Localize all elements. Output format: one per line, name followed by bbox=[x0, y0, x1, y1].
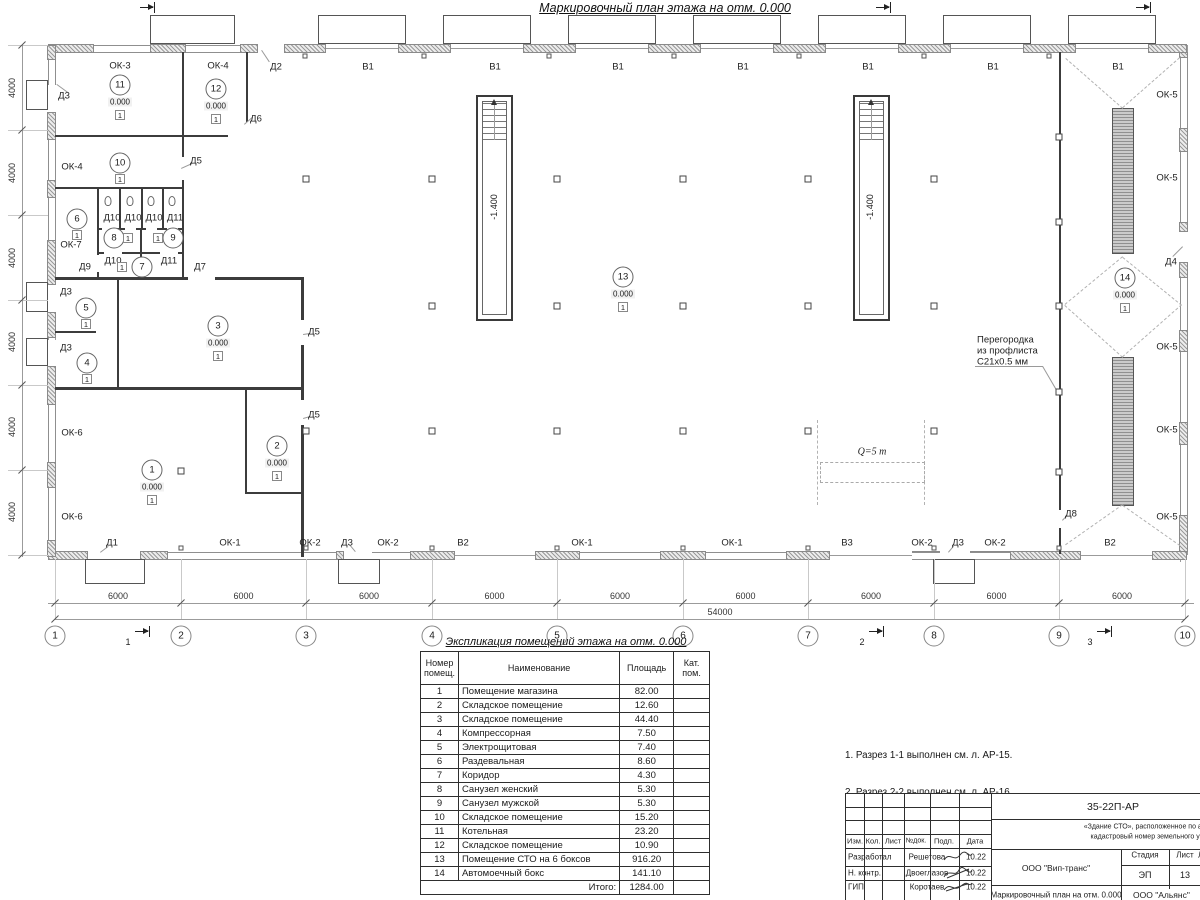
table-cell bbox=[674, 769, 710, 783]
table-cell bbox=[674, 727, 710, 741]
dimension-value: 4000 bbox=[7, 78, 17, 98]
window-segment bbox=[186, 45, 240, 53]
floor-type: 1 bbox=[72, 230, 82, 240]
column bbox=[931, 303, 938, 310]
floor-plan: ОК-3ОК-4Д2В1В1В1В1В1В1В1Д3Д6ОК-4Д5Д10Д10… bbox=[0, 0, 1200, 660]
floor-type: 1 bbox=[81, 319, 91, 329]
column bbox=[554, 303, 561, 310]
row-role: ГИП bbox=[848, 883, 864, 892]
entrance-canopy bbox=[85, 559, 145, 584]
wall-segment bbox=[523, 44, 576, 53]
floor-type: 1 bbox=[213, 351, 223, 361]
table-cell: 4.30 bbox=[620, 769, 674, 783]
entrance-canopy bbox=[818, 15, 906, 44]
wall-segment bbox=[47, 366, 56, 405]
slope-line bbox=[1064, 305, 1123, 358]
table-total-row: Итого:1284.00 bbox=[421, 881, 710, 895]
plan-label: Д10 bbox=[124, 213, 141, 224]
section-number: 3 bbox=[1087, 637, 1092, 647]
grid-extension bbox=[432, 559, 433, 619]
entrance-canopy bbox=[26, 282, 48, 312]
table-cell: 7 bbox=[421, 769, 459, 783]
col-kol: Кол. bbox=[866, 837, 881, 846]
col-ndok: №док. bbox=[906, 838, 927, 845]
table-cell: 5 bbox=[421, 741, 459, 755]
room-number: 6 bbox=[67, 209, 88, 230]
plan-label: Д11 bbox=[161, 256, 177, 267]
column bbox=[303, 428, 310, 435]
plan-label: Д3 bbox=[60, 343, 72, 354]
wall-segment bbox=[1152, 551, 1187, 560]
table-cell bbox=[674, 783, 710, 797]
stair-arrow bbox=[871, 104, 872, 140]
col-izm: Изм. bbox=[847, 837, 863, 846]
floor-type: 1 bbox=[115, 110, 125, 120]
door-opening bbox=[47, 340, 57, 366]
table-cell: 10.90 bbox=[620, 839, 674, 853]
interior-wall bbox=[246, 52, 248, 122]
table-cell: Складское помещение bbox=[458, 811, 619, 825]
room-number: 12 bbox=[206, 79, 227, 100]
table-cell: Компрессорная bbox=[458, 727, 619, 741]
window-segment bbox=[706, 552, 786, 560]
titleblock-line bbox=[846, 820, 991, 821]
row-name: Решетова bbox=[909, 853, 946, 862]
plan-label: В1 bbox=[862, 62, 874, 73]
interior-wall bbox=[97, 187, 99, 255]
plan-label: из профлиста bbox=[977, 346, 1038, 357]
plan-label: Д8 bbox=[1065, 509, 1077, 520]
column bbox=[1056, 134, 1063, 141]
stair-arrow-head bbox=[868, 99, 874, 105]
table-cell: 14 bbox=[421, 867, 459, 881]
gate-line bbox=[830, 555, 912, 556]
window-segment bbox=[970, 552, 1010, 560]
dimension-value: 4000 bbox=[7, 502, 17, 522]
table-cell: Складское помещение bbox=[458, 839, 619, 853]
dimension-line bbox=[22, 45, 23, 557]
entrance-canopy bbox=[26, 338, 48, 366]
table-row: 7Коридор4.30 bbox=[421, 769, 710, 783]
table-cell bbox=[674, 685, 710, 699]
table-header: Наименование bbox=[458, 652, 619, 685]
entrance-canopy bbox=[693, 15, 781, 44]
pilaster bbox=[430, 546, 435, 551]
table-cell: Складское помещение bbox=[458, 699, 619, 713]
room-number: 5 bbox=[76, 298, 97, 319]
plan-label: В2 bbox=[1104, 538, 1116, 549]
table-cell: 8.60 bbox=[620, 755, 674, 769]
wall-segment bbox=[1179, 330, 1188, 352]
titleblock-line bbox=[991, 885, 1200, 886]
plan-label: В1 bbox=[362, 62, 374, 73]
window-segment bbox=[48, 198, 56, 240]
table-row: 9Санузел мужской5.30 bbox=[421, 797, 710, 811]
toilet-fixture bbox=[127, 196, 134, 206]
table-cell bbox=[674, 839, 710, 853]
table-cell: 5.30 bbox=[620, 797, 674, 811]
door-opening bbox=[1081, 551, 1152, 561]
column bbox=[1056, 303, 1063, 310]
grid-extension bbox=[55, 559, 56, 619]
explication-title: Экспликация помещений этажа на отм. 0.00… bbox=[420, 636, 712, 648]
window-segment bbox=[1180, 352, 1188, 422]
pilaster bbox=[922, 54, 927, 59]
wall-segment bbox=[1023, 44, 1076, 53]
plan-label: ОК-6 bbox=[61, 512, 82, 523]
entrance-canopy bbox=[318, 15, 406, 44]
table-cell: Коридор bbox=[458, 769, 619, 783]
plan-label: Д9 bbox=[79, 262, 91, 273]
dimension-value: 4000 bbox=[7, 332, 17, 352]
room-number: 13 bbox=[613, 267, 634, 288]
table-header: Кат. пом. bbox=[674, 652, 710, 685]
dimension-line bbox=[48, 603, 1194, 604]
table-cell: 6 bbox=[421, 755, 459, 769]
door-opening bbox=[830, 551, 912, 561]
dimension-value: 6000 bbox=[108, 591, 128, 601]
table-cell: 141.10 bbox=[620, 867, 674, 881]
pilaster bbox=[422, 54, 427, 59]
room-elevation: 0.000 bbox=[140, 483, 164, 492]
table-cell: 82.00 bbox=[620, 685, 674, 699]
table-cell: 23.20 bbox=[620, 825, 674, 839]
pilaster bbox=[806, 546, 811, 551]
window-segment bbox=[288, 552, 336, 560]
room-number: 1 bbox=[142, 460, 163, 481]
company: ООО "Вип-транс" bbox=[1022, 863, 1090, 873]
plan-label: ОК-5 bbox=[1156, 90, 1177, 101]
interior-wall bbox=[215, 277, 302, 280]
plan-label: ОК-5 bbox=[1156, 425, 1177, 436]
plan-label: ОК-2 bbox=[984, 538, 1005, 549]
room-number: 14 bbox=[1115, 268, 1136, 289]
grid-extension bbox=[8, 300, 48, 301]
column bbox=[931, 428, 938, 435]
table-cell: 7.40 bbox=[620, 741, 674, 755]
entrance-canopy bbox=[26, 80, 48, 110]
column bbox=[429, 303, 436, 310]
table-cell bbox=[674, 713, 710, 727]
stair-arrow-head bbox=[491, 99, 497, 105]
interior-wall bbox=[117, 277, 119, 388]
interior-wall bbox=[178, 252, 184, 254]
table-cell: 12.60 bbox=[620, 699, 674, 713]
interior-wall bbox=[119, 187, 121, 230]
table-row: 8Санузел женский5.30 bbox=[421, 783, 710, 797]
plan-label: Д2 bbox=[270, 62, 282, 73]
gate-line bbox=[451, 48, 523, 49]
dimension-value: 6000 bbox=[484, 591, 504, 601]
plan-label: -1.400 bbox=[865, 192, 875, 222]
pilaster bbox=[303, 54, 308, 59]
column bbox=[1056, 219, 1063, 226]
room-elevation: 0.000 bbox=[611, 290, 635, 299]
wall-segment bbox=[773, 44, 826, 53]
crane-zone bbox=[820, 462, 925, 483]
stage-label: Стадия bbox=[1131, 851, 1158, 860]
plan-label: ОК-2 bbox=[377, 538, 398, 549]
wall-segment bbox=[1010, 551, 1081, 560]
table-cell: 2 bbox=[421, 699, 459, 713]
plan-label: Д5 bbox=[308, 327, 320, 338]
interior-wall bbox=[245, 387, 247, 493]
grid-bubble: 8 bbox=[924, 626, 945, 647]
floor-type: 1 bbox=[1120, 303, 1130, 313]
table-row: 14Автомоечный бокс141.10 bbox=[421, 867, 710, 881]
titleblock-line bbox=[864, 794, 865, 900]
grid-extension bbox=[8, 470, 48, 471]
row-role: Разработал bbox=[848, 853, 892, 862]
entrance-canopy bbox=[943, 15, 1031, 44]
titleblock-line bbox=[991, 819, 1200, 820]
wall-segment bbox=[1179, 262, 1188, 278]
room-elevation: 0.000 bbox=[1113, 291, 1137, 300]
drawing-title: Маркировочный план на отм. 0.000 bbox=[990, 891, 1121, 900]
column bbox=[680, 428, 687, 435]
dimension-value: 4000 bbox=[7, 163, 17, 183]
wall-segment bbox=[47, 45, 56, 60]
plan-label: ОК-2 bbox=[911, 538, 932, 549]
gate-line bbox=[455, 555, 535, 556]
pilaster bbox=[797, 54, 802, 59]
grid-bubble: 9 bbox=[1049, 626, 1070, 647]
company2: ООО "Альянс" bbox=[1133, 890, 1190, 900]
table-cell: 5.30 bbox=[620, 783, 674, 797]
interior-wall bbox=[122, 252, 160, 254]
interior-wall bbox=[162, 187, 164, 230]
table-row: 12Складское помещение10.90 bbox=[421, 839, 710, 853]
table-cell bbox=[674, 825, 710, 839]
plan-label: Д4 bbox=[1165, 257, 1177, 268]
dimension-value: 6000 bbox=[861, 591, 881, 601]
wall-segment bbox=[398, 44, 451, 53]
room-number: 11 bbox=[110, 75, 131, 96]
col-list: Лист bbox=[885, 837, 901, 846]
entrance-canopy bbox=[1068, 15, 1156, 44]
wall-segment bbox=[150, 44, 186, 53]
pilaster bbox=[1057, 546, 1062, 551]
grid-extension bbox=[306, 559, 307, 619]
table-cell: 15.20 bbox=[620, 811, 674, 825]
section-arrow bbox=[1150, 2, 1151, 13]
dimension-value: 6000 bbox=[735, 591, 755, 601]
table-row: 13Помещение СТО на 6 боксов916.20 bbox=[421, 853, 710, 867]
signature bbox=[942, 850, 974, 864]
table-cell: Котельная bbox=[458, 825, 619, 839]
grid-bubble: 7 bbox=[798, 626, 819, 647]
total-value: 1284.00 bbox=[620, 881, 674, 895]
plan-label: В1 bbox=[489, 62, 501, 73]
grid-extension bbox=[8, 45, 48, 46]
grid-bubble: 3 bbox=[296, 626, 317, 647]
plan-label: Д5 bbox=[308, 410, 320, 421]
titleblock-line bbox=[1169, 849, 1170, 889]
titleblock-line bbox=[882, 794, 883, 900]
dimension-value: 6000 bbox=[359, 591, 379, 601]
dimension-value: 6000 bbox=[1112, 591, 1132, 601]
door-opening bbox=[47, 285, 57, 312]
table-cell: 11 bbox=[421, 825, 459, 839]
room-number: 7 bbox=[132, 257, 153, 278]
plan-label: ОК-3 bbox=[109, 61, 130, 72]
door-opening bbox=[455, 551, 535, 561]
titleblock-line bbox=[1121, 849, 1122, 900]
titleblock-line bbox=[959, 794, 960, 900]
gate-line bbox=[1081, 555, 1152, 556]
plan-label: Д3 bbox=[952, 538, 964, 549]
pilaster bbox=[555, 546, 560, 551]
table-row: 1Помещение магазина82.00 bbox=[421, 685, 710, 699]
doc-number: 35-22П-АР bbox=[1087, 801, 1139, 813]
titleblock-line bbox=[930, 794, 931, 900]
table-cell: 10 bbox=[421, 811, 459, 825]
grid-extension bbox=[1185, 559, 1186, 619]
plan-label: ОК-5 bbox=[1156, 173, 1177, 184]
column bbox=[805, 176, 812, 183]
window-segment bbox=[94, 45, 150, 53]
interior-wall bbox=[141, 187, 143, 230]
titleblock-line bbox=[846, 834, 991, 835]
interior-wall bbox=[97, 228, 102, 230]
room-number: 2 bbox=[267, 436, 288, 457]
plan-label: Д3 bbox=[58, 91, 70, 102]
project-line2: кадастровый номер земельного участка: 86… bbox=[1091, 834, 1200, 841]
window-segment bbox=[1180, 58, 1188, 128]
explication-table: Номер помещ.НаименованиеПлощадьКат. пом.… bbox=[420, 651, 710, 895]
interior-wall bbox=[301, 345, 304, 400]
window-segment bbox=[48, 60, 56, 85]
floor-type: 1 bbox=[115, 174, 125, 184]
section-arrow bbox=[154, 2, 155, 13]
column bbox=[1056, 469, 1063, 476]
interior-wall bbox=[55, 135, 228, 137]
interior-wall bbox=[245, 492, 303, 494]
table-header: Площадь bbox=[620, 652, 674, 685]
grid-bubble: 1 bbox=[45, 626, 66, 647]
dimension-total: 54000 bbox=[707, 607, 732, 617]
column bbox=[429, 176, 436, 183]
room-elevation: 0.000 bbox=[206, 339, 230, 348]
table-cell: 1 bbox=[421, 685, 459, 699]
table-cell bbox=[674, 853, 710, 867]
table-cell: Электрощитовая bbox=[458, 741, 619, 755]
section-arrow bbox=[149, 626, 150, 637]
floor-type: 1 bbox=[153, 233, 163, 243]
column bbox=[680, 176, 687, 183]
door-opening bbox=[47, 85, 57, 112]
table-cell bbox=[674, 811, 710, 825]
table-cell: 4 bbox=[421, 727, 459, 741]
interior-wall bbox=[55, 387, 302, 390]
gate-line bbox=[576, 48, 648, 49]
section-arrow bbox=[883, 626, 884, 637]
grid-extension bbox=[8, 385, 48, 386]
pilaster bbox=[672, 54, 677, 59]
table-row: 11Котельная23.20 bbox=[421, 825, 710, 839]
wall-segment bbox=[47, 462, 56, 488]
wall-segment bbox=[1179, 422, 1188, 445]
window-segment bbox=[1180, 152, 1188, 222]
plan-label: ОК-7 bbox=[60, 240, 81, 251]
wall-segment bbox=[47, 540, 56, 557]
titleblock-line bbox=[846, 807, 991, 808]
callout-leader bbox=[1042, 366, 1057, 391]
wall-segment bbox=[284, 44, 326, 53]
plan-label: ОК-6 bbox=[61, 428, 82, 439]
plan-label: Д3 bbox=[60, 287, 72, 298]
grid-extension bbox=[1059, 559, 1060, 619]
table-cell bbox=[674, 741, 710, 755]
dimension-value: 4000 bbox=[7, 248, 17, 268]
floor-type: 1 bbox=[618, 302, 628, 312]
window-segment bbox=[48, 140, 56, 180]
interior-wall bbox=[97, 252, 104, 254]
gate-line bbox=[701, 48, 773, 49]
gate-line bbox=[326, 48, 398, 49]
window-segment bbox=[48, 405, 56, 462]
wall-segment bbox=[648, 44, 701, 53]
titleblock-line bbox=[846, 866, 991, 867]
table-cell: 44.40 bbox=[620, 713, 674, 727]
entrance-canopy bbox=[443, 15, 531, 44]
toilet-fixture bbox=[169, 196, 176, 206]
sheet-value: 13 bbox=[1180, 870, 1190, 880]
section-arrow bbox=[1111, 626, 1112, 637]
interior-wall bbox=[55, 277, 188, 280]
entrance-canopy bbox=[933, 559, 975, 584]
row-name: Коротаев bbox=[910, 883, 945, 892]
interior-wall bbox=[55, 331, 96, 333]
grid-extension bbox=[8, 555, 48, 556]
plan-label: В1 bbox=[987, 62, 999, 73]
col-data: Дата bbox=[967, 837, 984, 846]
title-block: 35-22П-АР «Здание СТО», расположенное по… bbox=[845, 793, 1200, 900]
wall-segment bbox=[240, 44, 258, 53]
interior-wall bbox=[182, 135, 184, 157]
plan-label: Д7 bbox=[194, 262, 206, 273]
plan-label: ОК-5 bbox=[1156, 512, 1177, 523]
drawing-canvas: Маркировочный план этажа на отм. 0.000 О… bbox=[0, 0, 1200, 900]
dimension-value: 4000 bbox=[7, 417, 17, 437]
room-elevation: 0.000 bbox=[204, 102, 228, 111]
toilet-fixture bbox=[105, 196, 112, 206]
wall-segment bbox=[1179, 128, 1188, 152]
floor-type: 1 bbox=[147, 495, 157, 505]
section-arrow bbox=[890, 2, 891, 13]
plan-label: В3 bbox=[841, 538, 853, 549]
grid-extension bbox=[181, 559, 182, 619]
plan-label: В1 bbox=[612, 62, 624, 73]
plan-label: Д11 bbox=[167, 213, 183, 224]
window-segment bbox=[1180, 445, 1188, 515]
pilaster bbox=[179, 546, 184, 551]
column bbox=[303, 176, 310, 183]
col-podp: Подп. bbox=[934, 837, 954, 846]
gate-line bbox=[826, 48, 898, 49]
table-cell bbox=[674, 699, 710, 713]
titleblock-line bbox=[846, 880, 991, 881]
column bbox=[554, 428, 561, 435]
table-cell: 9 bbox=[421, 797, 459, 811]
pilaster bbox=[547, 54, 552, 59]
wall-segment bbox=[1179, 515, 1188, 552]
table-cell: Раздевальная bbox=[458, 755, 619, 769]
table-row: 3Складское помещение44.40 bbox=[421, 713, 710, 727]
gate-line bbox=[951, 48, 1023, 49]
column bbox=[805, 428, 812, 435]
table-cell bbox=[674, 755, 710, 769]
